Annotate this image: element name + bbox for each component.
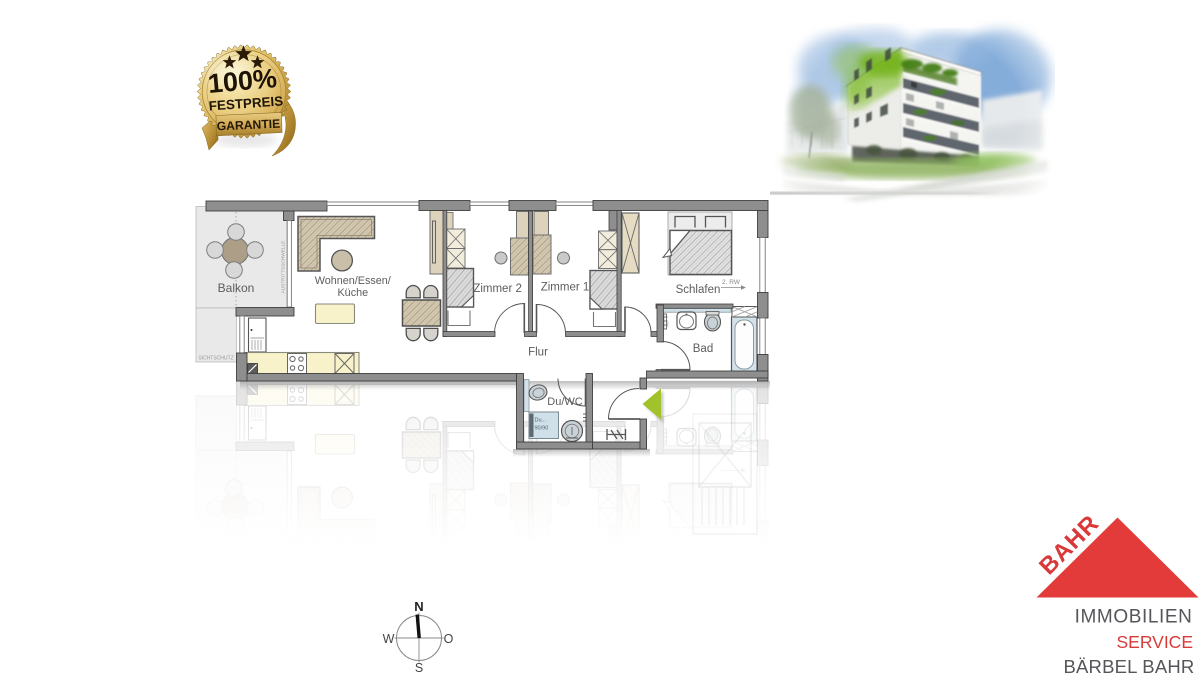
- svg-text:N: N: [414, 599, 423, 614]
- svg-text:S: S: [415, 661, 423, 675]
- svg-text:SERVICE: SERVICE: [1116, 632, 1193, 652]
- svg-text:IMMOBILIEN: IMMOBILIEN: [1075, 607, 1193, 628]
- svg-text:O: O: [444, 632, 454, 646]
- svg-text:BÄRBEL BAHR: BÄRBEL BAHR: [1063, 656, 1194, 675]
- svg-text:GARANTIE: GARANTIE: [216, 117, 280, 134]
- svg-text:W: W: [383, 632, 395, 646]
